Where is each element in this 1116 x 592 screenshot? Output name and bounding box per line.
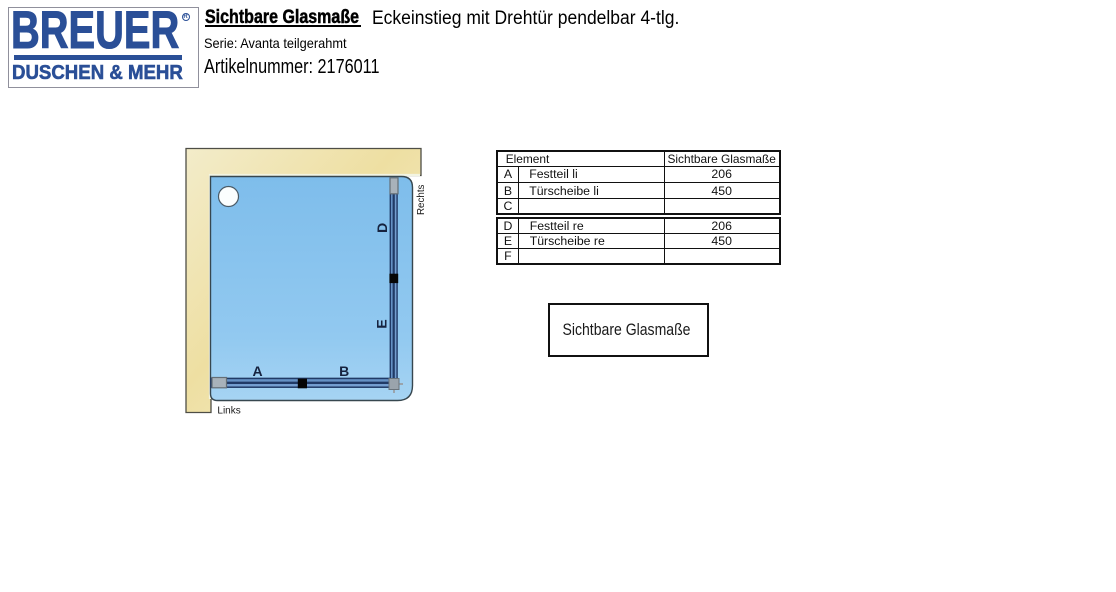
svg-text:A: A [253,363,263,379]
svg-text:Rechts: Rechts [416,184,427,215]
svg-text:E: E [374,319,390,328]
svg-text:D: D [374,223,390,233]
svg-text:Links: Links [217,406,240,417]
svg-text:B: B [339,363,349,379]
